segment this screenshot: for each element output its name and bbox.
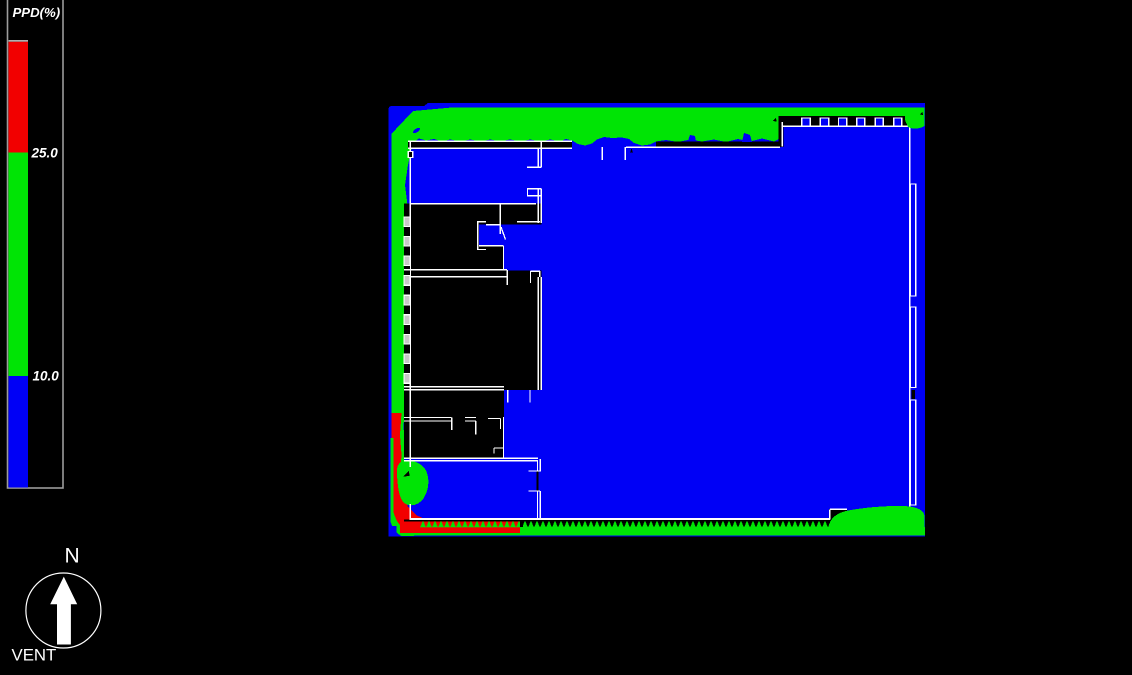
svg-text:25.0: 25.0	[31, 146, 59, 161]
svg-text:10.0: 10.0	[33, 369, 60, 384]
svg-text:PPD(%): PPD(%)	[13, 5, 61, 20]
svg-text:N: N	[65, 545, 80, 568]
svg-text:VENT: VENT	[12, 646, 57, 665]
